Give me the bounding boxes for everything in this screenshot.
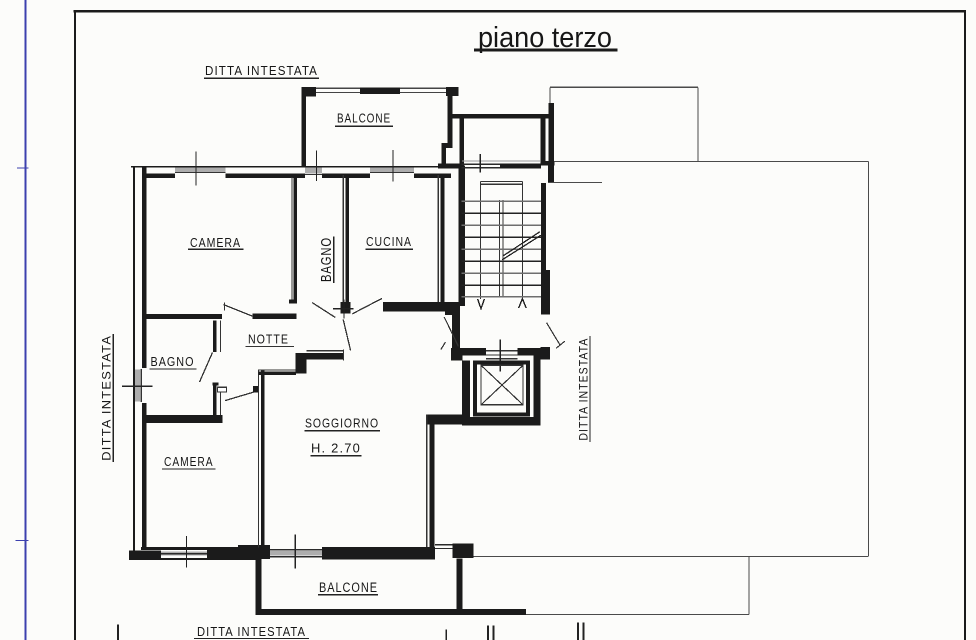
svg-text:CAMERA: CAMERA bbox=[164, 454, 214, 469]
svg-text:BALCONE: BALCONE bbox=[319, 580, 378, 595]
svg-text:DITTA INTESTATA: DITTA INTESTATA bbox=[197, 625, 306, 639]
svg-text:BALCONE: BALCONE bbox=[337, 111, 391, 126]
svg-text:CAMERA: CAMERA bbox=[190, 235, 241, 250]
svg-text:BAGNO: BAGNO bbox=[318, 237, 335, 282]
svg-text:CUCINA: CUCINA bbox=[366, 234, 412, 249]
svg-text:BAGNO: BAGNO bbox=[151, 354, 195, 369]
svg-text:DITTA INTESTATA: DITTA INTESTATA bbox=[100, 335, 114, 461]
svg-text:DITTA INTESTATA: DITTA INTESTATA bbox=[576, 338, 590, 441]
svg-text:NOTTE: NOTTE bbox=[248, 332, 289, 347]
svg-text:DITTA INTESTATA: DITTA INTESTATA bbox=[205, 64, 318, 78]
svg-text:SOGGIORNO: SOGGIORNO bbox=[305, 415, 379, 430]
svg-text:H. 2.70: H. 2.70 bbox=[311, 440, 361, 455]
